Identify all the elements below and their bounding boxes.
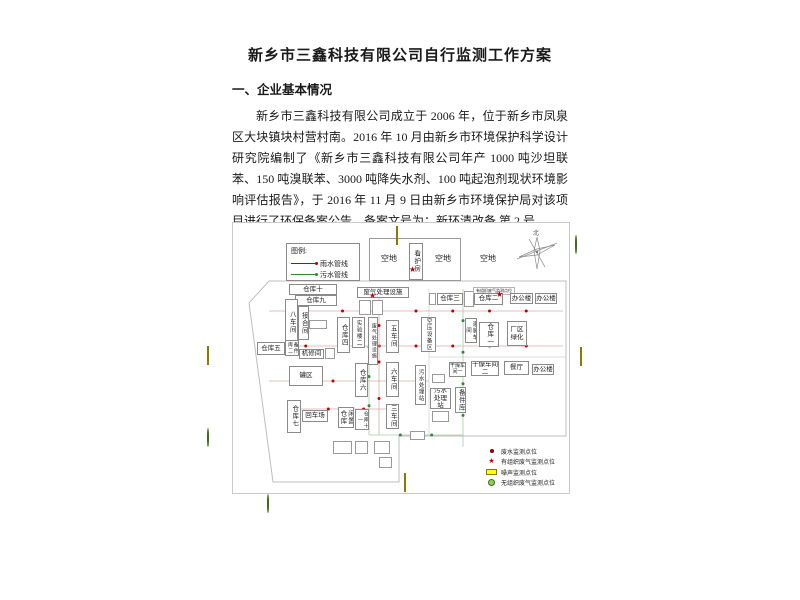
fugitive-gas-point-icon [267, 495, 269, 513]
building-label: 仓库二 [474, 293, 503, 305]
building-label: 三车间 [386, 404, 399, 429]
fugitive-gas-point-icon [207, 429, 209, 447]
building-label: 五车间 [386, 320, 399, 353]
building-label: 备件库二 [285, 340, 299, 356]
small-structure [410, 431, 425, 440]
pipe-legend-item: 污水管线 [291, 269, 355, 280]
red-dot-icon [485, 449, 498, 453]
green-circle-icon [485, 479, 498, 486]
building-label: 回车场 [302, 410, 328, 422]
building-label: 空地 [374, 251, 404, 267]
pipe-legend-label: 雨水管线 [320, 259, 348, 269]
building-label: 仓库三 [437, 293, 463, 305]
pipe-legend: 图例: 雨水管线污水管线 [286, 243, 360, 281]
point-legend-item: ★有组织废气监测点位 [485, 457, 555, 468]
small-structure [333, 441, 352, 454]
building-label: 灌装车间 [465, 318, 477, 343]
building-label: 办公楼 [532, 364, 554, 375]
small-structure [379, 457, 392, 468]
small-structure [359, 300, 371, 315]
building-label: 空地 [475, 251, 501, 267]
compass-icon: 北 [513, 227, 561, 273]
pipe-legend-title: 图例: [291, 246, 355, 256]
building-label: 污水处理站 [430, 388, 451, 409]
building-label: 空压设备区 [421, 317, 436, 352]
small-structure [432, 411, 449, 422]
building-label: 接合间 [298, 306, 309, 340]
fugitive-gas-point-icon [575, 236, 577, 254]
small-structure [429, 293, 436, 305]
intro-paragraph: 新乡市三鑫科技有限公司成立于 2006 年，位于新乡市凤泉区大块镇块村营村南。2… [232, 106, 568, 232]
building-label: 办公楼 [510, 293, 533, 304]
building-label: 仓库一 [479, 322, 499, 347]
small-structure [432, 374, 445, 383]
building-label: 仓库四 [337, 317, 350, 353]
pipe-legend-label: 污水管线 [320, 270, 348, 280]
building-label: 六车间 [386, 362, 399, 397]
page-title: 新乡市三鑫科技有限公司自行监测工作方案 [232, 44, 568, 65]
pipe-legend-item: 雨水管线 [291, 258, 355, 269]
point-legend: 废水监测点位★有组织废气监测点位噪声监测点位无组织废气监测点位 [485, 446, 555, 488]
building-label: 废气处理设施 [368, 317, 378, 365]
building-label: 闲置仓库 [338, 407, 354, 428]
building-label: 看护房 [409, 243, 423, 280]
point-legend-item: 无组织废气监测点位 [485, 478, 555, 489]
building-label: 罐区 [289, 366, 323, 386]
point-legend-label: 噪声监测点位 [501, 468, 537, 477]
point-legend-label: 无组织废气监测点位 [501, 478, 555, 487]
red-star-icon: ★ [485, 458, 498, 465]
building-label: 仓库十一 [355, 409, 369, 430]
building-label: 厂区绿化 [507, 321, 527, 346]
noise-point-icon [207, 347, 209, 365]
building-label: 废气处理设施 [357, 287, 409, 298]
building-label: 污水处理站 [415, 365, 426, 405]
building-label: 备件库 [455, 387, 466, 413]
building-label: 仓库七 [287, 400, 301, 433]
point-legend-label: 废水监测点位 [501, 447, 537, 456]
building-label: 仓库九 [295, 295, 337, 306]
compass-north-label: 北 [533, 229, 539, 237]
building-label: 仓库五 [257, 342, 285, 355]
building-label: 八车间 [285, 299, 298, 345]
building-label: 实验楼二 [352, 317, 365, 348]
point-legend-label: 有组织废气监测点位 [501, 457, 555, 466]
small-structure [309, 320, 327, 329]
building-label: 仓库十 [289, 284, 337, 295]
building-label: 机修间 [299, 349, 324, 359]
point-legend-item: 废水监测点位 [485, 446, 555, 457]
small-structure [355, 441, 368, 454]
small-structure [325, 348, 335, 359]
point-legend-item: 噪声监测点位 [485, 467, 555, 478]
noise-point-icon [580, 348, 582, 366]
small-structure [372, 300, 383, 315]
building-label: 干燥车间二 [471, 361, 499, 376]
building-label: 餐厅 [504, 361, 529, 375]
yellow-rect-icon [485, 469, 498, 475]
small-structure [374, 441, 390, 454]
building-label: 仓库六 [355, 363, 368, 397]
building-label: 办公楼 [535, 293, 557, 304]
section1-heading: 一、企业基本情况 [232, 79, 568, 98]
building-label: 空地 [430, 251, 456, 267]
site-diagram: 空地空地空地看护房仓库十仓库九八车间接合间仓库五备件库二机修间罐区仓库七回车场闲… [232, 222, 570, 494]
building-label: 干燥车间一 [449, 362, 466, 377]
